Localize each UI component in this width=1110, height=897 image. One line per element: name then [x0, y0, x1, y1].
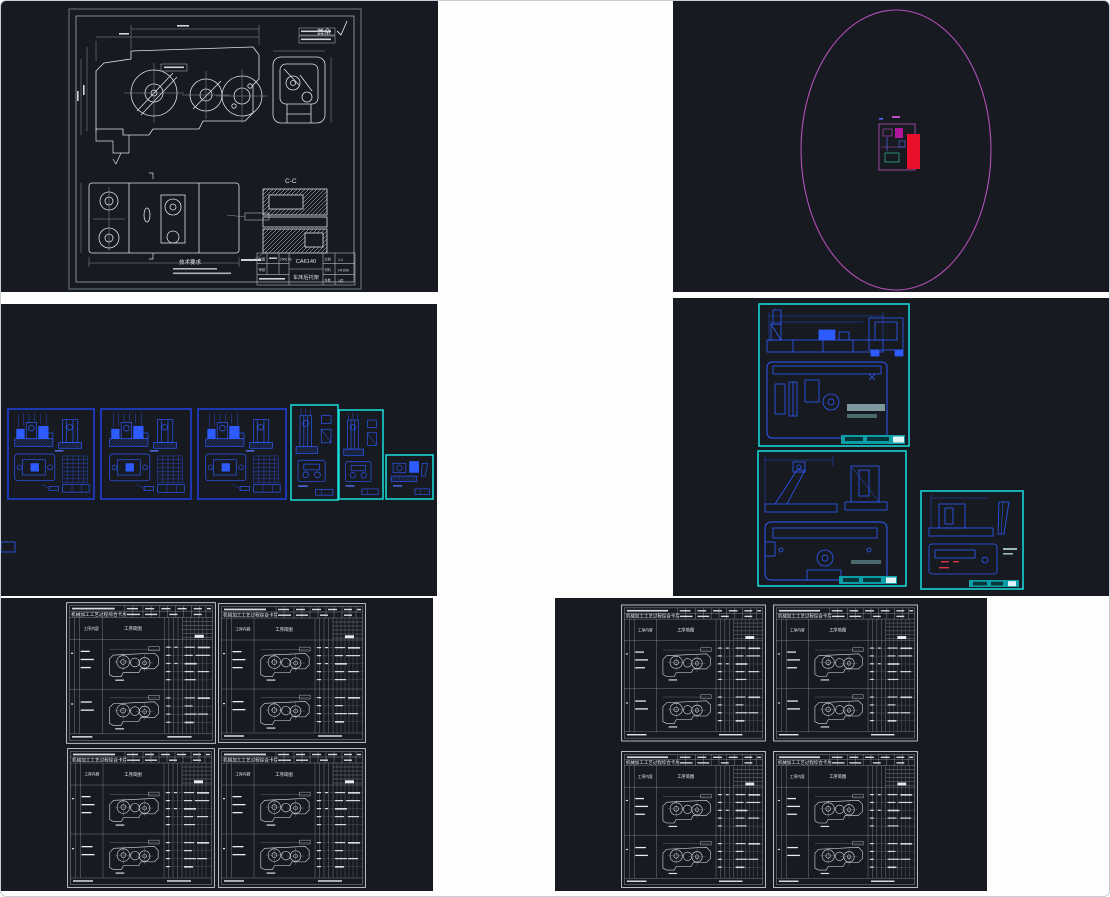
process-card[interactable]: [622, 752, 766, 888]
qty-value: 1件: [338, 278, 344, 283]
material-value: HT200: [338, 268, 349, 272]
process-card[interactable]: [774, 605, 918, 741]
check-label: 审核: [259, 267, 266, 272]
process-cards-right-art: [555, 598, 987, 891]
front-view: [96, 47, 268, 164]
tech-requirements: 技术要求: [173, 258, 231, 274]
sheet-c: [198, 409, 286, 499]
process-card[interactable]: [774, 752, 918, 888]
sheet-g-titleblock: [841, 435, 905, 444]
material-label: 材料: [325, 267, 332, 272]
overview-art: [673, 1, 1109, 292]
part-name: 车床后托架: [293, 273, 319, 281]
drawing-extents-ellipse: [801, 10, 991, 290]
qty-label: 件数: [325, 278, 332, 283]
panel-overview[interactable]: [673, 1, 1109, 292]
side-view: [273, 51, 331, 123]
sheet-f: [386, 455, 433, 499]
sheet-e: [339, 410, 383, 499]
panel-fixture-sheets-blue[interactable]: [1, 304, 437, 596]
red-highlight-block: [907, 134, 920, 169]
sheet-d: [291, 405, 338, 500]
red-dimension-marks: [939, 561, 959, 568]
part-drawing-art: 其余: [1, 1, 438, 292]
edge-tag: [1, 542, 15, 552]
tiny-drawing-cluster: [879, 116, 920, 170]
title-block: 制图 审核 2006.06 CA6140 车床后托架 比例 1:1 材料 HT2…: [257, 253, 355, 285]
sheet-g: [759, 304, 909, 446]
sheet-a: [8, 409, 94, 499]
fixture-sheets-cyan-art: [673, 298, 1109, 596]
draw-label: 制图: [259, 257, 266, 262]
section-label: C-C: [285, 178, 297, 185]
fixture-sheets-blue-art: [1, 304, 437, 596]
panel-fixture-sheets-cyan[interactable]: [673, 298, 1109, 596]
window-frame: 其余: [0, 0, 1110, 897]
surface-finish-note: 其余: [317, 21, 347, 36]
notes-block: [847, 404, 885, 411]
scale-value: 1:1: [338, 258, 343, 262]
sheet-b: [101, 409, 191, 499]
date-value: 2006.06: [280, 258, 292, 262]
sheet-h: [758, 451, 906, 586]
panel-process-cards-left[interactable]: 机械加工工艺过程综合卡片: [1, 598, 433, 891]
plan-view: [81, 173, 269, 267]
roughness-icon: [337, 21, 347, 35]
tech-req-title: 技术要求: [179, 258, 202, 266]
process-card[interactable]: [219, 749, 366, 888]
part-code: CA6140: [296, 259, 316, 265]
process-cards-left-art: 机械加工工艺过程综合卡片: [1, 598, 433, 891]
sheet-i: [921, 491, 1023, 589]
process-card[interactable]: [622, 605, 766, 741]
process-card[interactable]: [67, 603, 216, 744]
process-card[interactable]: [68, 749, 215, 888]
panel-process-cards-right[interactable]: [555, 598, 987, 891]
process-card[interactable]: [219, 604, 366, 743]
panel-part-drawing[interactable]: 其余: [1, 1, 438, 292]
section-view: C-C: [241, 178, 327, 261]
scale-label: 比例: [325, 257, 331, 262]
sheet-i-titleblock: [969, 580, 1019, 587]
sheet-h-titleblock: [839, 576, 897, 584]
